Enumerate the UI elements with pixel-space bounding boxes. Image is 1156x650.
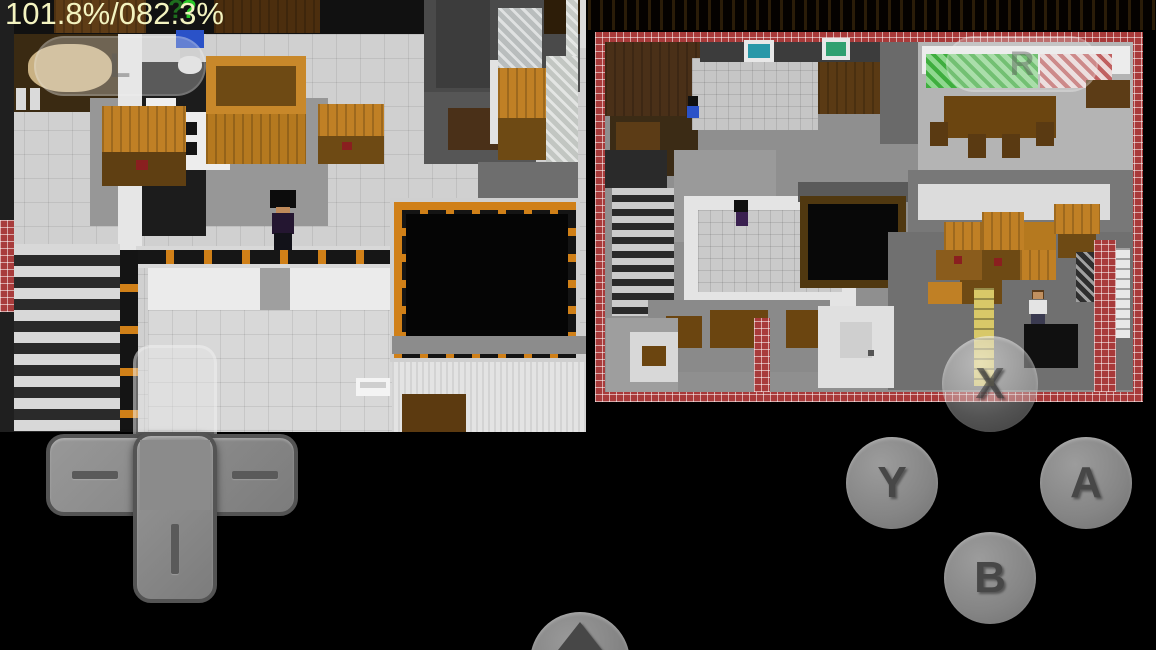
scene-block bbox=[0, 312, 14, 432]
scene-block bbox=[206, 114, 306, 164]
scene-block bbox=[260, 268, 290, 310]
scene-block bbox=[478, 162, 578, 202]
scene-block bbox=[1116, 248, 1130, 338]
scene-block bbox=[342, 142, 352, 150]
scene-block bbox=[0, 0, 14, 220]
scene-block bbox=[392, 336, 586, 354]
scene-block bbox=[692, 58, 818, 130]
dpad-left-dash-icon bbox=[72, 471, 118, 479]
scene-block bbox=[1020, 250, 1056, 280]
shoulder-l-button[interactable]: L bbox=[34, 36, 206, 96]
scene-block bbox=[136, 160, 148, 170]
menu-button[interactable] bbox=[530, 612, 630, 650]
scene-block bbox=[734, 200, 748, 212]
scene-block bbox=[16, 88, 26, 110]
dpad-right-dash-icon bbox=[232, 471, 278, 479]
scene-block bbox=[1031, 314, 1045, 324]
shoulder-r-label: R bbox=[1010, 45, 1035, 84]
scene-block bbox=[14, 244, 120, 432]
scene-block bbox=[687, 106, 699, 118]
button-x-label: X bbox=[975, 359, 1004, 409]
scene-block bbox=[880, 42, 920, 144]
scene-block bbox=[808, 204, 898, 280]
scene-block bbox=[360, 382, 386, 388]
button-y-label: Y bbox=[877, 458, 906, 508]
scene-block bbox=[580, 0, 586, 48]
scene-block bbox=[274, 233, 292, 250]
button-a-label: A bbox=[1070, 458, 1102, 508]
dpad-down-dash-icon bbox=[171, 524, 179, 574]
scene-block bbox=[748, 44, 770, 58]
scene-block bbox=[402, 394, 466, 432]
scene-block bbox=[102, 106, 186, 152]
scene-block bbox=[954, 256, 962, 264]
scene-block bbox=[406, 214, 568, 344]
scene-block bbox=[0, 220, 14, 312]
scene-block bbox=[1029, 300, 1047, 314]
scene-block bbox=[1036, 122, 1054, 146]
dpad-center[interactable] bbox=[140, 440, 210, 510]
scene-block bbox=[868, 350, 874, 356]
scene-block bbox=[754, 318, 770, 392]
scene-block bbox=[612, 188, 674, 316]
dpad-up-arm[interactable] bbox=[133, 345, 217, 437]
scene-block bbox=[270, 190, 296, 208]
button-y[interactable]: Y bbox=[846, 437, 938, 529]
scene-block bbox=[1086, 80, 1130, 108]
emulator-stage: ? ? 101.8%/082.3% L R X Y A B bbox=[0, 0, 1156, 650]
button-b[interactable]: B bbox=[944, 532, 1036, 624]
scene-block bbox=[546, 56, 578, 178]
scene-block bbox=[318, 104, 384, 136]
shoulder-l-label: L bbox=[110, 47, 131, 86]
scene-block bbox=[1094, 240, 1116, 392]
scene-block bbox=[588, 0, 1156, 30]
scene-block bbox=[968, 134, 986, 158]
scene-block bbox=[136, 250, 420, 264]
scene-block bbox=[826, 42, 846, 56]
scene-block bbox=[936, 250, 982, 280]
scene-block bbox=[30, 88, 40, 110]
emulation-speed-text: 101.8%/082.3% bbox=[5, 0, 224, 32]
scene-block bbox=[436, 0, 490, 88]
scene-block bbox=[642, 346, 666, 366]
scene-block bbox=[1033, 292, 1043, 299]
scene-block bbox=[318, 136, 384, 164]
scene-block bbox=[944, 222, 982, 250]
scene-block bbox=[490, 60, 498, 144]
scene-block bbox=[605, 150, 667, 188]
scene-block bbox=[928, 282, 962, 304]
scene-block bbox=[1054, 204, 1100, 234]
triangle-up-icon bbox=[558, 622, 602, 650]
button-a[interactable]: A bbox=[1040, 437, 1132, 529]
scene-block bbox=[688, 96, 698, 106]
button-x[interactable]: X bbox=[942, 336, 1038, 432]
scene-block bbox=[216, 66, 296, 106]
shoulder-r-button[interactable]: R bbox=[946, 36, 1098, 92]
scene-block bbox=[214, 0, 320, 33]
scene-block bbox=[700, 42, 880, 62]
scene-block bbox=[736, 212, 748, 226]
scene-block bbox=[1024, 222, 1056, 250]
button-b-label: B bbox=[974, 553, 1006, 603]
scene-block bbox=[994, 258, 1002, 266]
scene-block bbox=[930, 122, 948, 146]
scene-block bbox=[272, 213, 294, 234]
scene-block bbox=[1002, 134, 1020, 158]
scene-block bbox=[982, 212, 1024, 250]
